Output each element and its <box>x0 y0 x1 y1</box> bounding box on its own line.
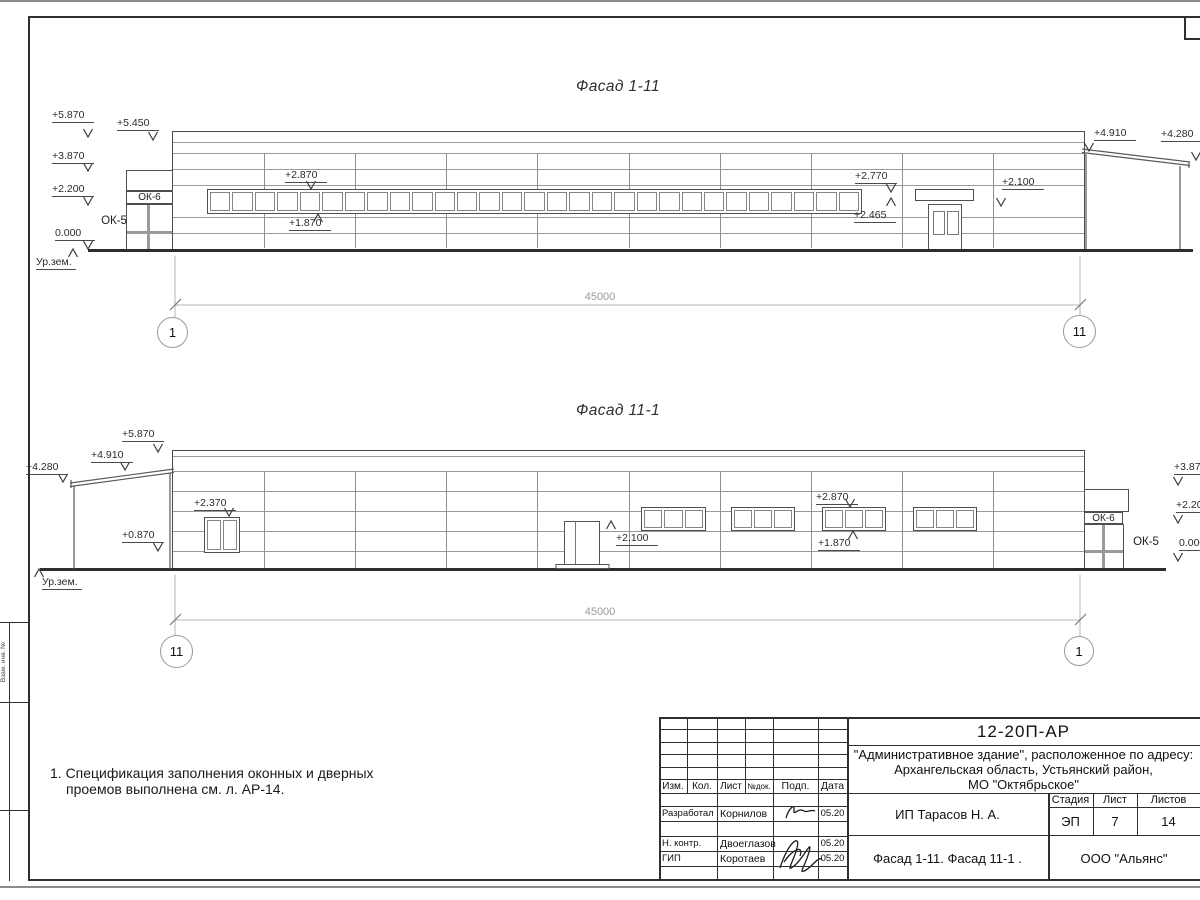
f1-elev-1870: +1.870 <box>289 217 331 231</box>
tb-name-gip: Коротаев <box>717 851 773 866</box>
tb-address-1: "Административное здание", расположенное… <box>847 747 1200 762</box>
tb-stage-header: Стадия <box>1048 793 1093 807</box>
drawing-sheet: Фасад 1-11 ОК-6 ОК-5 Фасад 11-1 <box>0 0 1200 900</box>
tb-date-developer: 05.20 <box>818 806 847 821</box>
facade2-annex <box>70 469 174 569</box>
tb-name-ncontrol: Двоеглазов <box>717 836 773 851</box>
door-threshold <box>556 565 609 569</box>
tb-role-gip: ГИП <box>659 851 717 866</box>
tb-date-ncontrol: 05.20 <box>818 836 847 851</box>
f1-elev-2200: +2.200 <box>52 183 94 197</box>
f2-ground-label: Ур.зем. <box>42 576 82 590</box>
tb-client: ИП Тарасов Н. А. <box>847 793 1048 835</box>
f2-elev-2100: +2.100 <box>616 532 658 546</box>
tb-col-ndoc: №док. <box>745 779 773 793</box>
f1-axis-11: 11 <box>1063 315 1096 348</box>
f1-elev-5870: +5.870 <box>52 109 94 123</box>
f1-elev-2870: +2.870 <box>285 169 327 183</box>
f1-elev-4910: +4.910 <box>1094 127 1136 141</box>
f1-elev-4280: +4.280 <box>1161 128 1200 142</box>
tb-address-3: МО "Октябрьское" <box>847 777 1200 792</box>
tb-col-kol: Кол. <box>687 779 717 793</box>
tb-address-2: Архангельская область, Устьянский район, <box>847 762 1200 777</box>
f2-elev-5870: +5.870 <box>122 428 164 442</box>
tb-role-developer: Разработал <box>659 806 717 821</box>
tb-role-ncontrol: Н. контр. <box>659 836 717 851</box>
tb-col-izm: Изм. <box>659 779 687 793</box>
f2-elev-1870: +1.870 <box>818 537 860 551</box>
note-line-2: проемов выполнена см. л. АР-14. <box>66 781 284 797</box>
tb-organization: ООО "Альянс" <box>1048 835 1200 881</box>
tb-sheets-header: Листов <box>1137 793 1200 807</box>
margin-box-line <box>0 702 28 703</box>
tb-col-list: Лист <box>717 779 745 793</box>
tb-date-gip: 05.20 <box>818 851 847 866</box>
frame-left <box>28 16 30 881</box>
f1-ground-label: Ур.зем. <box>36 256 76 270</box>
tb-sheet-value: 7 <box>1093 807 1137 835</box>
f1-elev-2465: +2.465 <box>854 209 896 223</box>
tb-stage-value: ЭП <box>1048 807 1093 835</box>
facade1-dimension <box>170 256 1086 317</box>
f2-axis-11: 11 <box>160 635 193 668</box>
f2-elev-4910: +4.910 <box>91 449 133 463</box>
f2-elev-4280: +4.280 <box>26 461 68 475</box>
f1-elev-0000: 0.000 <box>55 227 95 241</box>
tb-name-developer: Корнилов <box>717 806 773 821</box>
f2-elev-0000: 0.000 <box>1179 537 1200 551</box>
f2-elev-0870: +0.870 <box>122 529 164 543</box>
f2-elev-2200: +2.200 <box>1176 499 1200 513</box>
tb-col-data: Дата <box>818 779 847 793</box>
f2-dimension-text: 45000 <box>570 606 630 618</box>
margin-box-line <box>0 622 28 623</box>
f1-elev-5450: +5.450 <box>117 117 159 131</box>
tb-col-podp: Подп. <box>773 779 818 793</box>
signature-strokes <box>780 807 822 872</box>
f1-elev-2770: +2.770 <box>855 170 897 184</box>
tb-doc-code: 12-20П-АР <box>847 719 1200 745</box>
margin-box-line <box>0 810 28 811</box>
frame-corner-box-v <box>1184 16 1186 39</box>
f2-elev-2870: +2.870 <box>816 491 858 505</box>
f2-elev-2370: +2.370 <box>194 497 236 511</box>
facade1-annex <box>1082 149 1190 249</box>
f1-elev-2100: +2.100 <box>1002 176 1044 190</box>
f1-dimension-text: 45000 <box>570 291 630 303</box>
frame-top <box>28 16 1200 18</box>
f2-axis-1: 1 <box>1064 636 1094 666</box>
margin-stamp-label: Взам. инв. № <box>0 626 10 698</box>
f2-elev-3870: +3.870 <box>1174 461 1200 475</box>
tb-sheet-title: Фасад 1-11. Фасад 11-1 . <box>847 835 1048 881</box>
f1-elev-3870: +3.870 <box>52 150 94 164</box>
tb-sheet-header: Лист <box>1093 793 1137 807</box>
f1-axis-1: 1 <box>157 317 188 348</box>
note-line-1: 1. Спецификация заполнения оконных и две… <box>50 765 374 781</box>
frame-corner-box-h <box>1184 38 1200 40</box>
tb-sheets-value: 14 <box>1137 807 1200 835</box>
